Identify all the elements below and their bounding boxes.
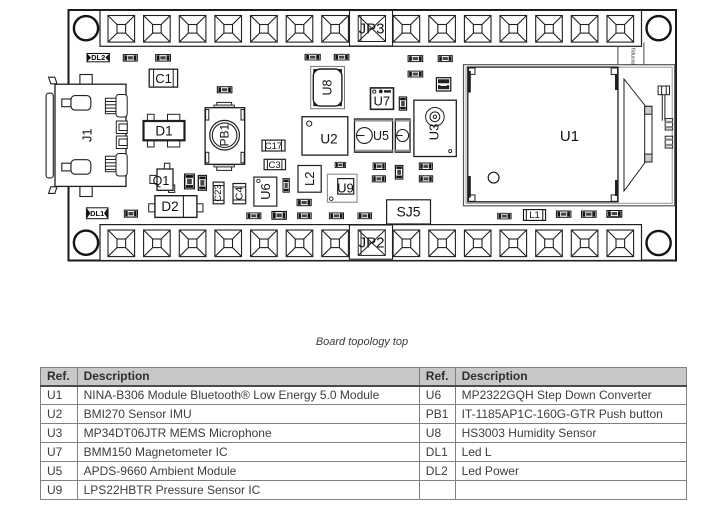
svg-text:SJ5: SJ5 (396, 204, 420, 220)
svg-text:DL2: DL2 (91, 53, 105, 62)
svg-text:DL1: DL1 (90, 209, 104, 218)
svg-text:JP2: JP2 (359, 235, 385, 252)
svg-text:C3: C3 (269, 160, 281, 171)
svg-text:D1: D1 (155, 124, 172, 139)
svg-text:C1: C1 (155, 71, 172, 86)
svg-text:U1: U1 (560, 128, 579, 145)
svg-text:U6: U6 (258, 183, 273, 200)
svg-text:U5: U5 (373, 129, 389, 143)
svg-text:U9: U9 (337, 181, 354, 196)
svg-text:U2: U2 (320, 132, 337, 147)
svg-text:D2: D2 (161, 199, 178, 214)
svg-text:C17: C17 (265, 141, 282, 152)
svg-text:L1: L1 (529, 210, 540, 221)
svg-text:C4: C4 (233, 187, 245, 201)
svg-text:U8: U8 (321, 79, 335, 95)
svg-text:C23: C23 (213, 184, 224, 201)
svg-text:PB1: PB1 (218, 124, 232, 147)
svg-text:U3: U3 (427, 124, 442, 141)
svg-text:L2: L2 (302, 172, 317, 186)
svg-text:J1: J1 (80, 128, 95, 142)
svg-text:JP3: JP3 (359, 21, 385, 38)
svg-text:Q1: Q1 (153, 174, 170, 188)
svg-text:fiducial: fiducial (630, 48, 636, 65)
svg-text:U7: U7 (373, 94, 390, 109)
